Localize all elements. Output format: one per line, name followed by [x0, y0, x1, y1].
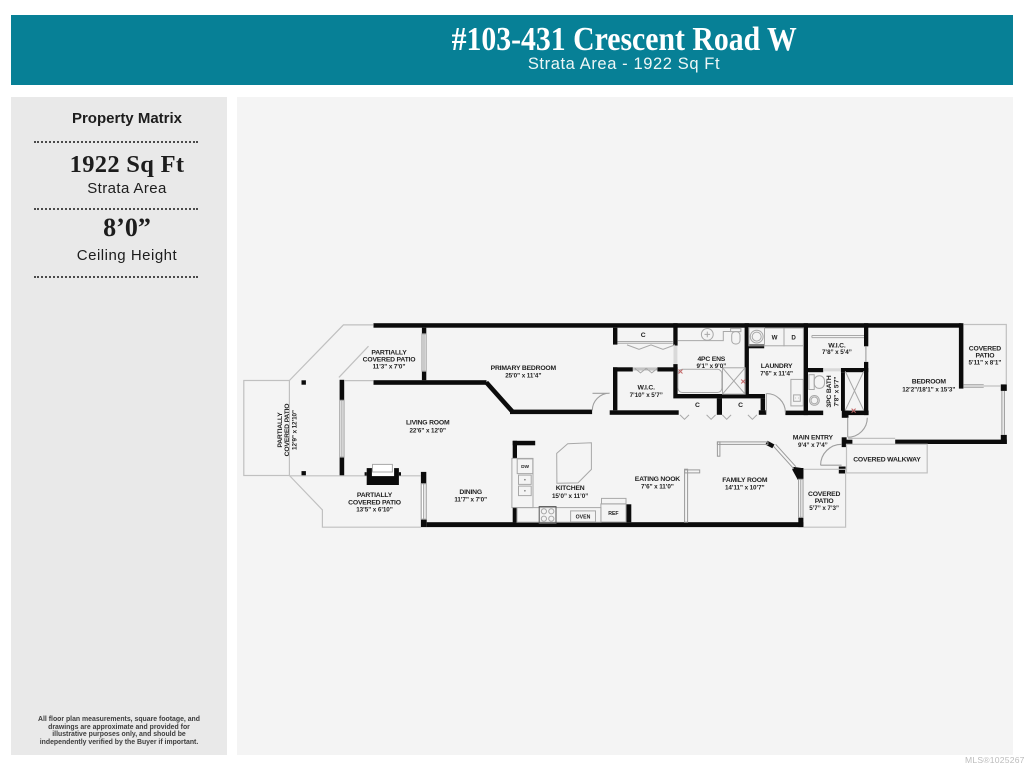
svg-text:COVERED: COVERED [969, 345, 1002, 352]
svg-text:13’5” x 6’10”: 13’5” x 6’10” [356, 507, 393, 514]
svg-text:C: C [738, 402, 743, 409]
svg-text:W.I.C.: W.I.C. [638, 385, 656, 392]
svg-text:PATIO: PATIO [976, 352, 995, 359]
svg-text:22’6” x 12’0”: 22’6” x 12’0” [409, 427, 446, 434]
svg-text:COVERED PATIO: COVERED PATIO [363, 357, 416, 364]
svg-text:7’8” x 5’4”: 7’8” x 5’4” [822, 349, 852, 356]
svg-text:COVERED: COVERED [808, 491, 841, 498]
svg-text:C: C [695, 402, 700, 409]
svg-text:REF: REF [608, 511, 618, 517]
svg-text:11’7” x 7’0”: 11’7” x 7’0” [454, 496, 487, 503]
svg-text:12’2”/18’1” x 15’3”: 12’2”/18’1” x 15’3” [902, 386, 955, 393]
svg-text:PARTIALLY: PARTIALLY [277, 412, 284, 448]
svg-text:15’0” x 11’0”: 15’0” x 11’0” [552, 493, 588, 500]
svg-text:LAUNDRY: LAUNDRY [761, 363, 793, 370]
svg-text:7’6” x 11’4”: 7’6” x 11’4” [760, 371, 793, 378]
svg-text:KITCHEN: KITCHEN [556, 485, 585, 492]
svg-text:DINING: DINING [459, 489, 482, 496]
svg-text:C: C [641, 332, 646, 339]
svg-text:11’3” x 7’0”: 11’3” x 7’0” [373, 364, 406, 371]
svg-text:25’0” x 11’4”: 25’0” x 11’4” [505, 372, 541, 379]
svg-text:PATIO: PATIO [815, 498, 834, 505]
svg-text:PARTIALLY: PARTIALLY [371, 349, 407, 356]
svg-text:PRIMARY BEDROOM: PRIMARY BEDROOM [491, 365, 557, 372]
svg-text:MAIN ENTRY: MAIN ENTRY [793, 435, 834, 442]
svg-text:PARTIALLY: PARTIALLY [357, 492, 393, 499]
svg-text:BEDROOM: BEDROOM [912, 379, 947, 386]
svg-text:9’4” x 7’4”: 9’4” x 7’4” [798, 442, 828, 449]
svg-text:7’6” x 11’0”: 7’6” x 11’0” [641, 483, 674, 490]
svg-text:5’7” x 7’3”: 5’7” x 7’3” [809, 505, 839, 512]
svg-text:12’9” x 12’10”: 12’9” x 12’10” [291, 410, 298, 450]
svg-text:DW: DW [521, 464, 529, 470]
svg-text:9’1” x 9’0”: 9’1” x 9’0” [696, 363, 726, 370]
svg-text:COVERED WALKWAY: COVERED WALKWAY [853, 456, 921, 463]
svg-text:W: W [772, 334, 778, 341]
svg-text:D: D [791, 334, 796, 341]
svg-text:COVERED PATIO: COVERED PATIO [284, 404, 291, 457]
svg-text:COVERED PATIO: COVERED PATIO [348, 499, 401, 506]
svg-text:FAMILY ROOM: FAMILY ROOM [722, 477, 768, 484]
svg-text:14’11” x 10’7”: 14’11” x 10’7” [725, 485, 765, 492]
svg-text:4PC ENS: 4PC ENS [697, 356, 725, 363]
svg-text:LIVING ROOM: LIVING ROOM [406, 420, 450, 427]
svg-text:3PC BATH: 3PC BATH [826, 375, 833, 407]
svg-text:EATING NOOK: EATING NOOK [635, 476, 681, 483]
svg-text:5’11” x 8’1”: 5’11” x 8’1” [969, 360, 1002, 367]
svg-text:OVEN: OVEN [576, 514, 591, 520]
svg-text:7’10” x 5’7”: 7’10” x 5’7” [630, 392, 663, 399]
svg-text:7’8” x 5’7”: 7’8” x 5’7” [833, 377, 840, 407]
